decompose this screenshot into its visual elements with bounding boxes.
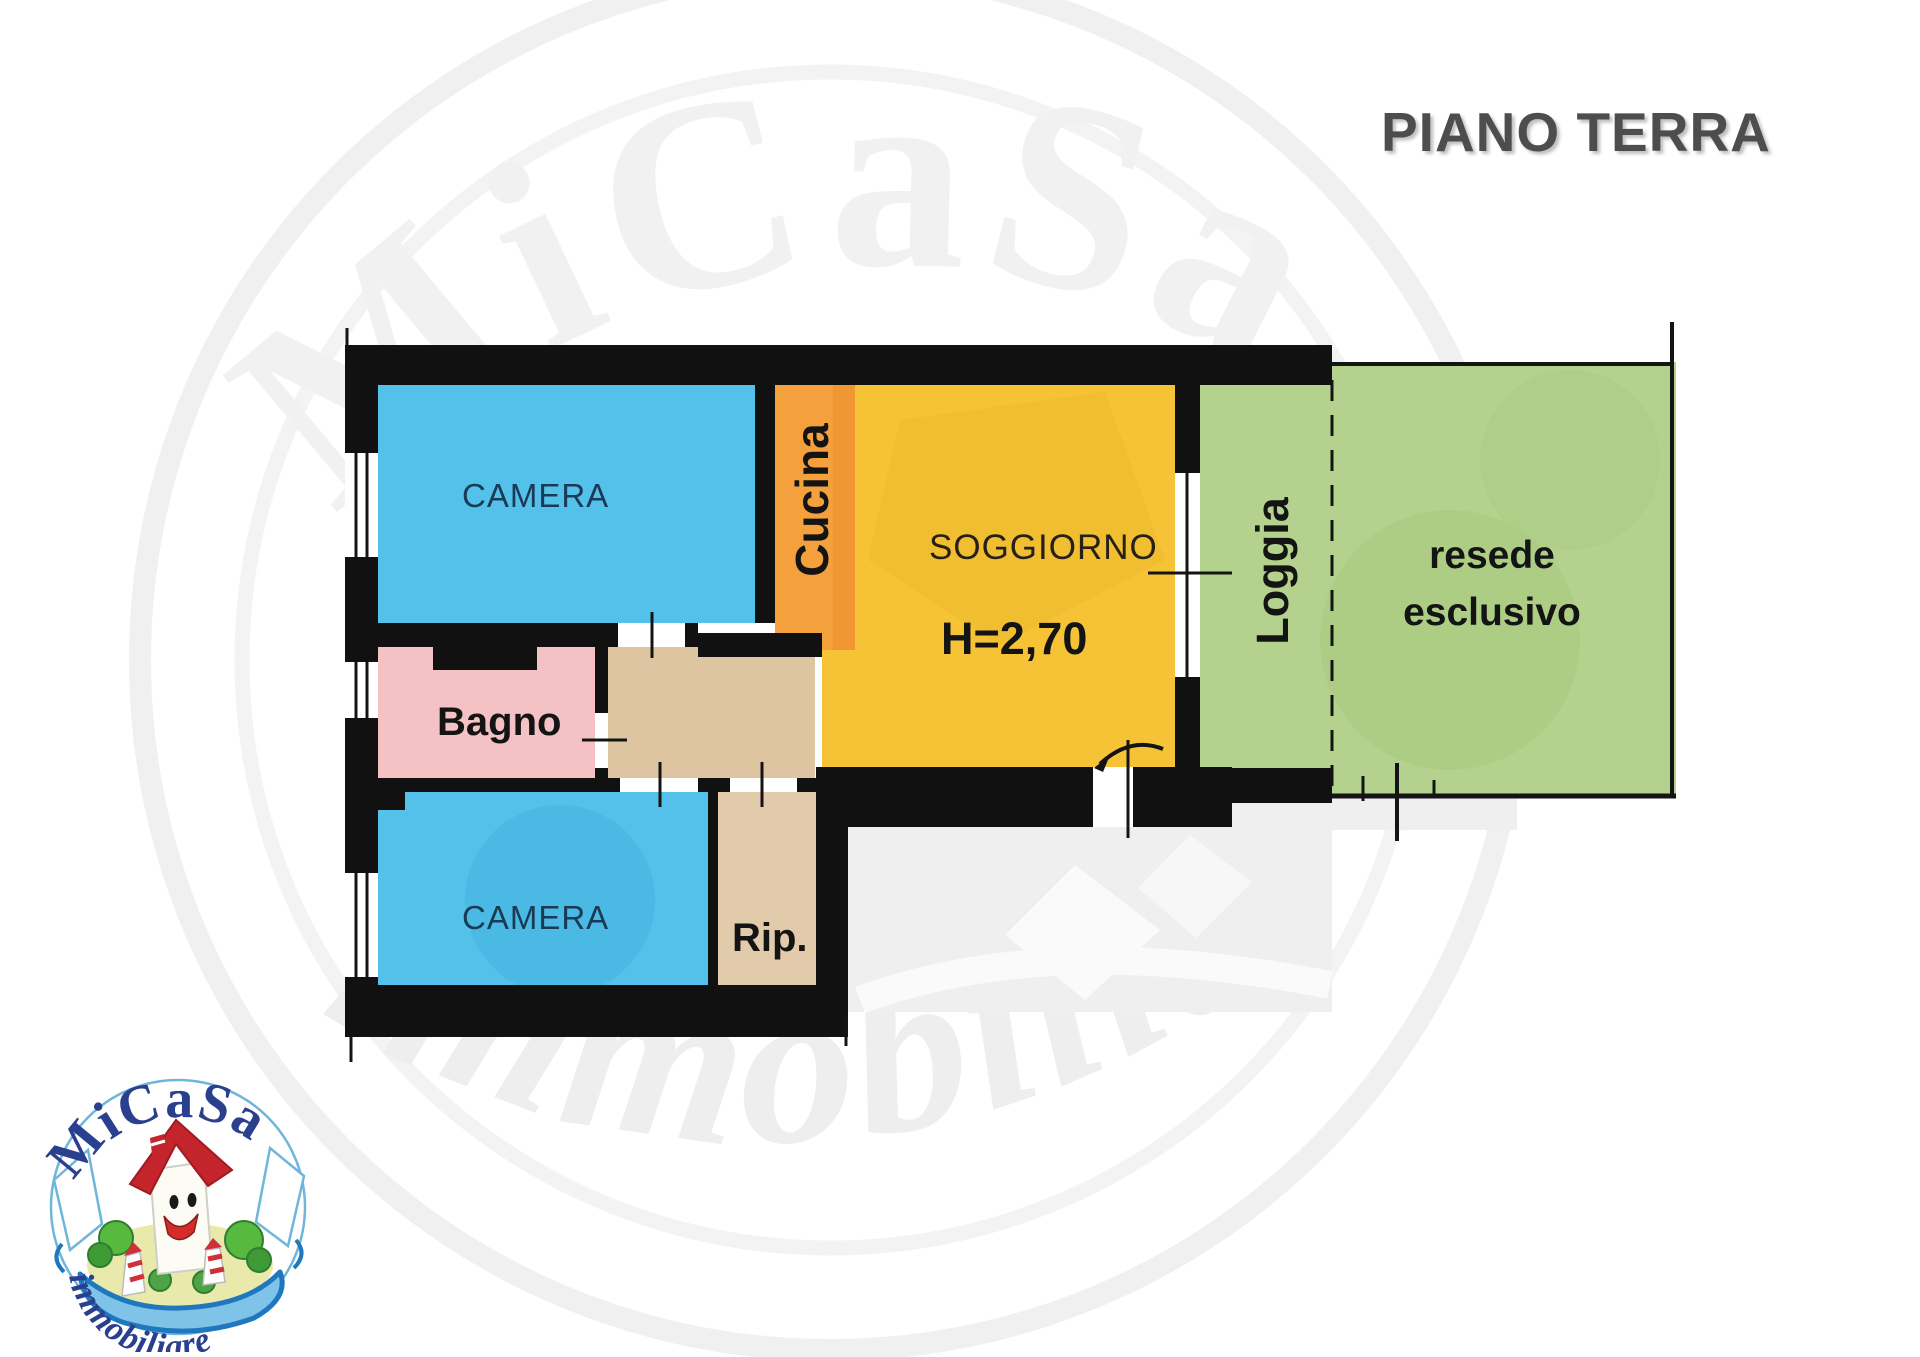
logo-eye-right (188, 1193, 197, 1207)
label-rip: Rip. (732, 916, 808, 961)
label-camera-bottom: CAMERA (462, 899, 609, 937)
label-resede-line1: resede (1403, 528, 1581, 585)
page-title: PIANO TERRA (1381, 100, 1771, 164)
exterior-strip (1332, 798, 1517, 830)
wall-soggiorno-right-bottom (1175, 677, 1200, 767)
label-cucina: Cucina (785, 423, 839, 576)
wall-camera-rip (708, 792, 718, 985)
wall-loggia-bottom (1232, 768, 1332, 803)
wall-cucina-bottom (698, 633, 822, 657)
wall-bagno-notch (433, 643, 537, 670)
label-resede-line2: esclusivo (1403, 585, 1581, 642)
wall-corner-block (1168, 767, 1232, 827)
label-soggiorno: SOGGIORNO (929, 528, 1158, 568)
logo-eye-left (170, 1195, 179, 1209)
resede-watermark-shade2 (1480, 370, 1660, 550)
wall-camera2-step (378, 792, 405, 810)
wall-camera-cucina (755, 385, 775, 623)
label-bagno: Bagno (437, 700, 561, 745)
exterior-gray (848, 798, 1517, 1012)
wall-soggiorno-right-top (1175, 345, 1200, 473)
window-camera-top (345, 453, 378, 557)
window-bagno (345, 662, 378, 718)
label-soggiorno-height: H=2,70 (941, 613, 1087, 665)
window-camera-bottom (345, 873, 378, 977)
label-loggia: Loggia (1247, 497, 1299, 644)
label-camera-top: CAMERA (462, 477, 609, 515)
floor-plan-page: MiCaSa immobiliare (0, 0, 1920, 1357)
wall-bottom (345, 985, 848, 1037)
agency-logo: MiCaSa immobiliare (38, 1052, 323, 1352)
label-resede: resede esclusivo (1403, 528, 1581, 641)
